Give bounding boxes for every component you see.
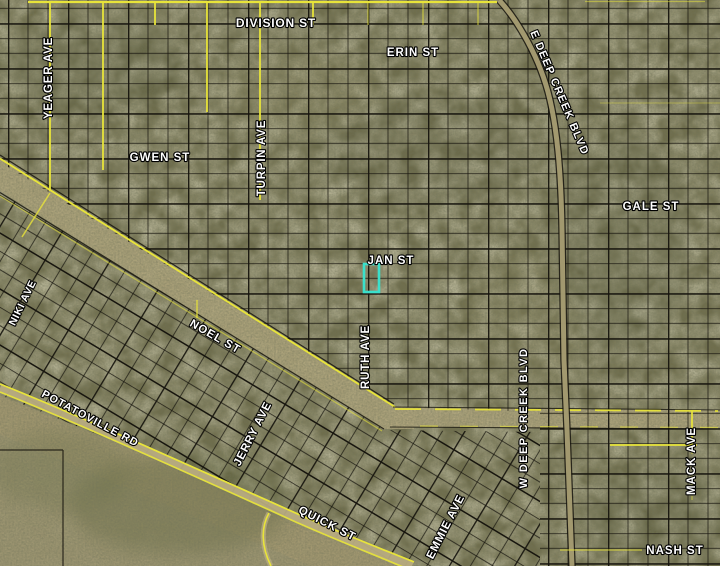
street-label-yeager-ave: YEAGER AVE xyxy=(43,37,55,119)
street-label-ruth-ave: RUTH AVE xyxy=(360,325,372,389)
map-viewport: DIVISION STERIN STE DEEP CREEK BLVDYEAGE… xyxy=(0,0,720,566)
street-label-nash-st: NASH ST xyxy=(646,545,703,557)
street-label-mack-ave: MACK AVE xyxy=(686,427,698,495)
street-label-turpin-ave: TURPIN AVE xyxy=(256,120,268,196)
street-label-jan-st: JAN ST xyxy=(368,255,415,267)
street-label-gwen-st: GWEN ST xyxy=(130,152,191,164)
street-label-w-deep-creek-blvd: W DEEP CREEK BLVD xyxy=(518,348,530,489)
street-label-gale-st: GALE ST xyxy=(623,201,680,213)
map-canvas[interactable]: DIVISION STERIN STE DEEP CREEK BLVDYEAGE… xyxy=(0,0,720,566)
street-label-erin-st: ERIN ST xyxy=(387,47,439,59)
street-label-division-st: DIVISION ST xyxy=(236,16,316,30)
